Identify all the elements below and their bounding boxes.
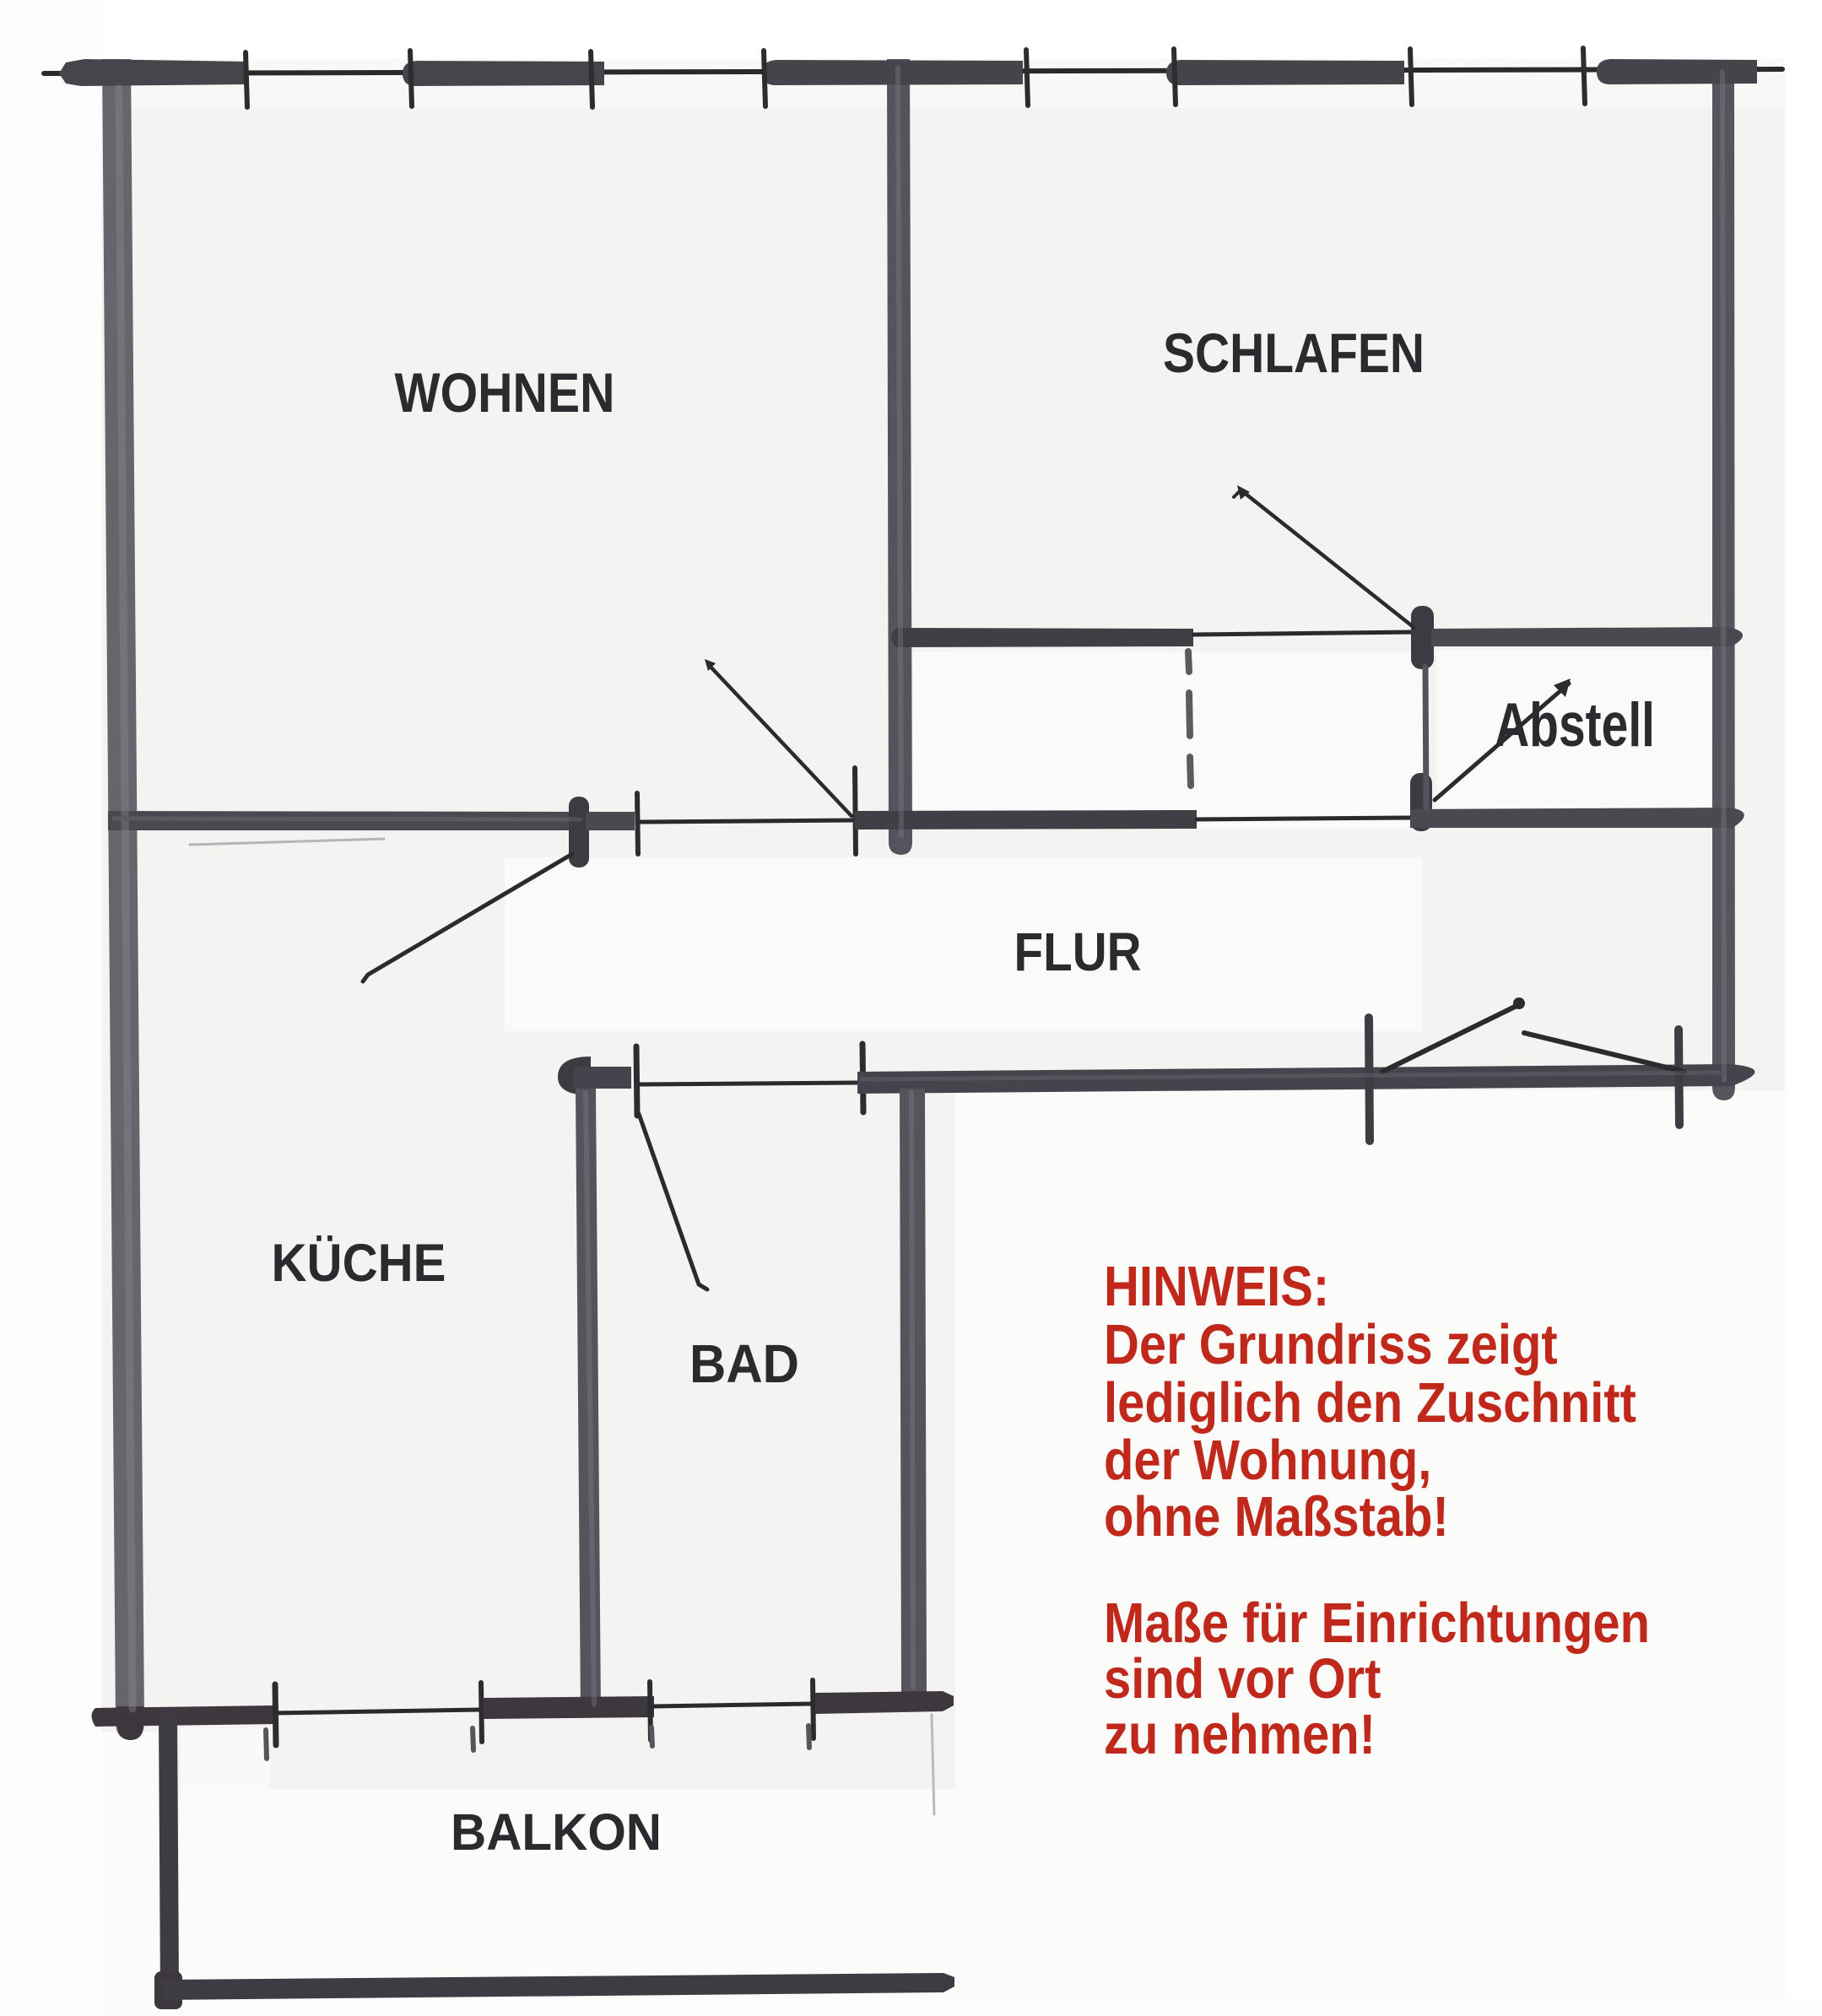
svg-text:Abstell: Abstell xyxy=(1495,691,1655,759)
svg-text:BALKON: BALKON xyxy=(451,1803,662,1861)
svg-text:FLUR: FLUR xyxy=(1014,922,1142,982)
svg-text:KÜCHE: KÜCHE xyxy=(272,1234,446,1293)
svg-text:Der Grundriss zeigt: Der Grundriss zeigt xyxy=(1104,1313,1558,1376)
svg-text:sind vor Ort: sind vor Ort xyxy=(1104,1647,1381,1711)
svg-text:der Wohnung,: der Wohnung, xyxy=(1104,1429,1431,1492)
svg-text:SCHLAFEN: SCHLAFEN xyxy=(1163,322,1425,384)
svg-text:Maße für Einrichtungen: Maße für Einrichtungen xyxy=(1104,1592,1650,1655)
svg-text:lediglich den Zuschnitt: lediglich den Zuschnitt xyxy=(1104,1371,1636,1435)
svg-text:BAD: BAD xyxy=(689,1333,799,1394)
svg-text:WOHNEN: WOHNEN xyxy=(395,361,615,424)
svg-text:HINWEIS:: HINWEIS: xyxy=(1104,1255,1329,1318)
svg-text:ohne Maßstab!: ohne Maßstab! xyxy=(1104,1485,1449,1548)
svg-text:zu nehmen!: zu nehmen! xyxy=(1104,1703,1376,1766)
